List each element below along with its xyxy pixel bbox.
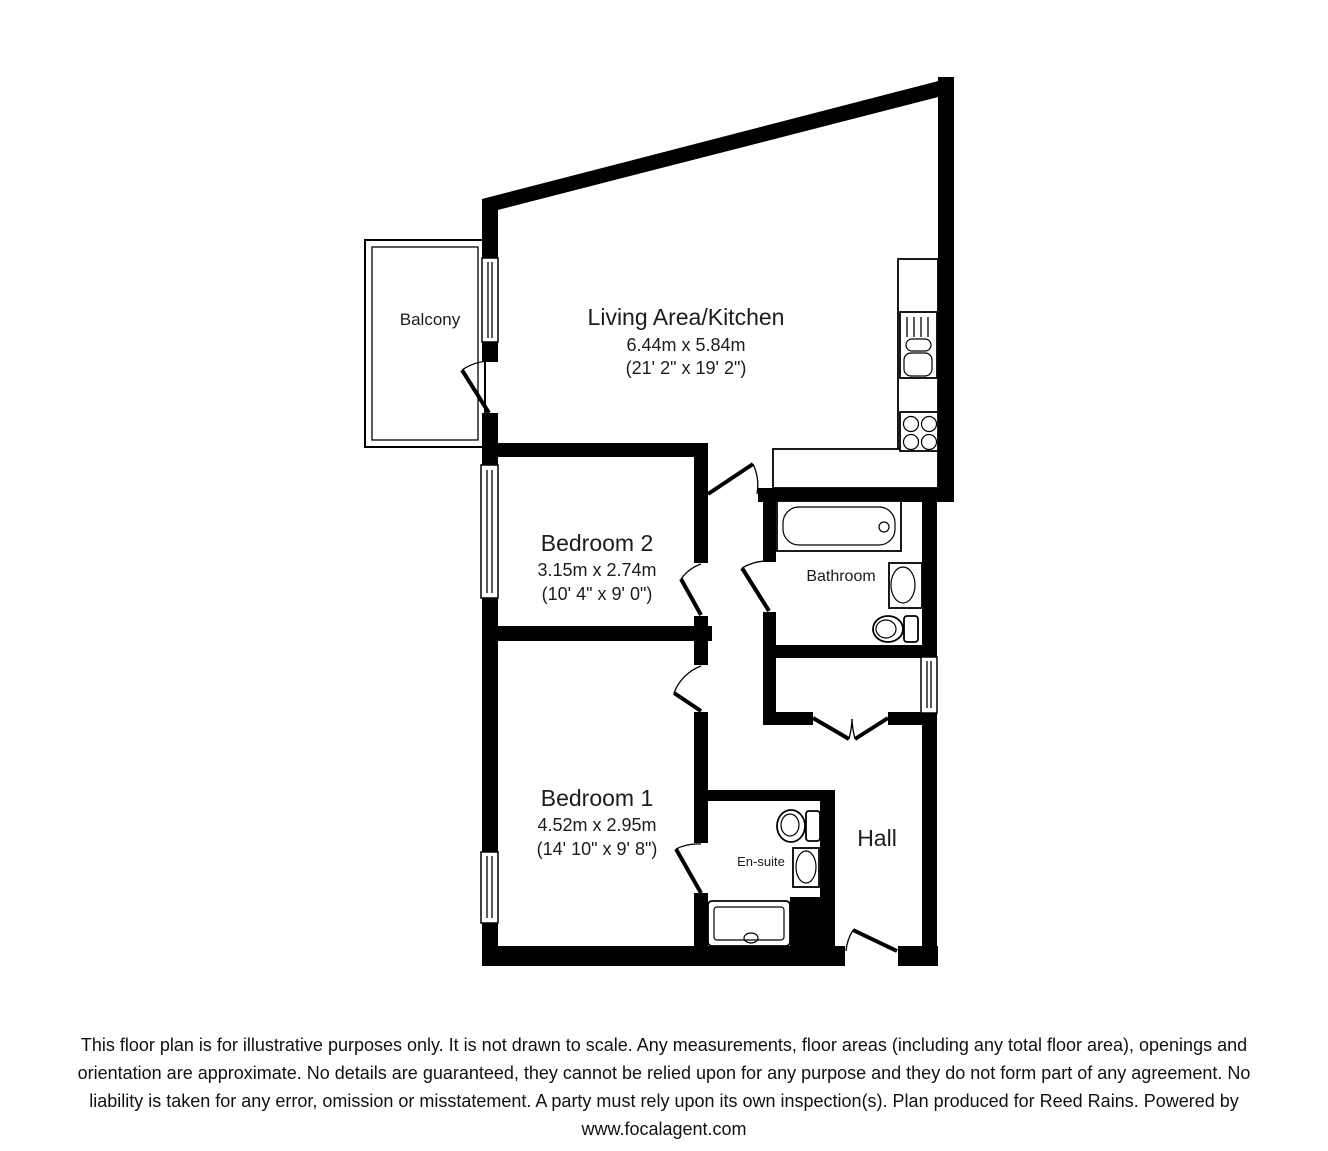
wall-storage-stub-left <box>763 712 813 725</box>
wall-bedrooms-right-b <box>694 616 708 665</box>
ensuite-door-icon <box>676 844 701 893</box>
bath-icon <box>777 501 901 551</box>
wall-left-a <box>482 199 498 259</box>
wall-right-lower-b <box>922 713 937 958</box>
bedroom1-dim-metric: 4.52m x 2.95m <box>537 815 656 835</box>
wall-left-b <box>482 341 498 362</box>
living-area-dim-metric: 6.44m x 5.84m <box>626 335 745 355</box>
balcony-label: Balcony <box>400 310 461 329</box>
wall-bedrooms-right-c <box>694 712 708 795</box>
floor-plan-drawing: Living Area/Kitchen 6.44m x 5.84m (21' 2… <box>0 0 1328 1151</box>
wall-top-slanted <box>482 77 954 214</box>
bedroom1-label: Bedroom 1 <box>541 785 654 811</box>
living-area-door-icon <box>708 464 758 494</box>
wall-right-upper <box>938 77 954 502</box>
wall-bottom-right <box>898 946 938 966</box>
wall-left-c <box>482 413 498 467</box>
disclaimer-line: This floor plan is for illustrative purp… <box>0 1031 1328 1059</box>
entry-door-icon <box>846 930 897 951</box>
disclaimer-line: liability is taken for any error, omissi… <box>0 1087 1328 1115</box>
wall-left-e <box>482 923 498 953</box>
bathroom-sink-icon <box>889 563 922 608</box>
hall-label: Hall <box>857 825 897 851</box>
wall-ensuite-right <box>820 790 835 953</box>
bathroom-label: Bathroom <box>806 568 875 585</box>
wall-bedroom2-top <box>482 443 708 457</box>
wall-ensuite-top <box>694 790 835 801</box>
bedroom2-label: Bedroom 2 <box>541 530 654 556</box>
bedroom1-window-icon <box>481 852 498 923</box>
bedroom1-door-icon <box>674 666 701 711</box>
disclaimer: This floor plan is for illustrative purp… <box>0 1031 1328 1143</box>
bedroom2-dim-metric: 3.15m x 2.74m <box>537 560 656 580</box>
balcony-outline <box>365 240 485 447</box>
ensuite-label: En-suite <box>737 854 785 869</box>
floor-plan-page: Living Area/Kitchen 6.44m x 5.84m (21' 2… <box>0 0 1328 1151</box>
bathroom-door-icon <box>742 561 769 611</box>
wall-bedrooms-right-a <box>694 443 708 563</box>
wall-ensuite-left-upper <box>694 795 708 843</box>
bedroom2-door-icon <box>681 564 701 615</box>
wall-bathroom-left-b <box>763 612 776 725</box>
wall-ensuite-left-lower <box>694 893 708 953</box>
living-area-dim-imperial: (21' 2" x 19' 2") <box>626 358 747 378</box>
living-area-label: Living Area/Kitchen <box>588 304 785 330</box>
storage-double-doors-icon <box>813 718 888 739</box>
balcony-window-icon <box>482 258 498 342</box>
hall-recess-window-icon <box>921 657 937 713</box>
kitchen-sink-icon <box>900 312 937 378</box>
disclaimer-line: www.focalagent.com <box>0 1115 1328 1143</box>
wall-right-lower-a <box>922 490 937 657</box>
hob-icon <box>900 412 938 451</box>
bedroom2-dim-imperial: (10' 4" x 9' 0") <box>542 584 653 604</box>
shower-tray-icon <box>708 901 790 946</box>
bedroom1-dim-imperial: (14' 10" x 9' 8") <box>537 839 658 859</box>
wall-bedroom-divider <box>482 626 712 641</box>
wall-bathroom-bottom <box>763 645 937 658</box>
wall-ensuite-block <box>790 897 822 953</box>
disclaimer-line: orientation are approximate. No details … <box>0 1059 1328 1087</box>
bedroom2-window-icon <box>481 465 498 598</box>
wall-bathroom-left-a <box>763 496 776 562</box>
ensuite-sink-icon <box>793 848 819 887</box>
ensuite-toilet-icon <box>777 810 820 842</box>
bathroom-toilet-icon <box>873 616 918 642</box>
wall-storage-stub-right <box>888 712 922 725</box>
